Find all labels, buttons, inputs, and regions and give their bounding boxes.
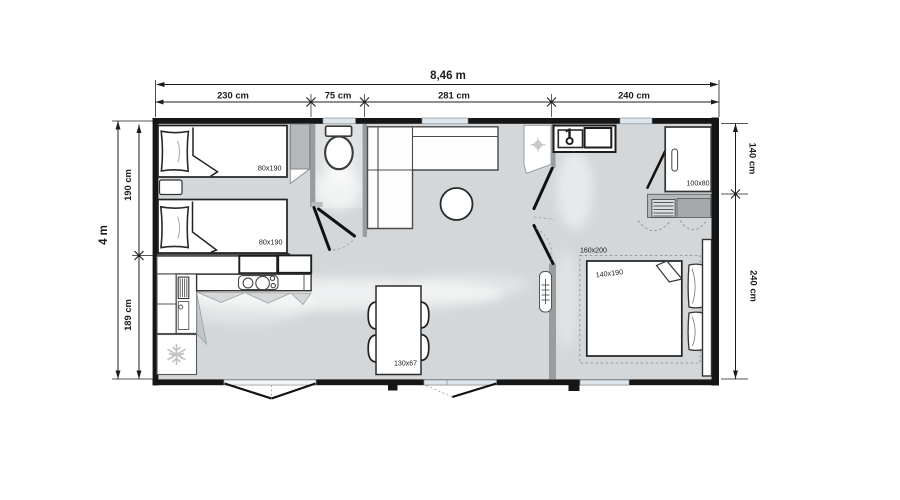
svg-text:160x200: 160x200 (580, 248, 607, 255)
svg-text:100x80: 100x80 (687, 181, 710, 188)
svg-text:130x67: 130x67 (394, 361, 417, 368)
svg-text:240 cm: 240 cm (618, 90, 650, 101)
svg-text:230 cm: 230 cm (217, 90, 249, 101)
svg-text:80x190: 80x190 (259, 237, 283, 246)
svg-text:8,46 m: 8,46 m (430, 70, 466, 82)
svg-text:240 cm: 240 cm (749, 270, 760, 302)
svg-text:75 cm: 75 cm (325, 90, 352, 101)
svg-text:189 cm: 189 cm (122, 299, 133, 331)
svg-text:4 m: 4 m (98, 225, 110, 245)
svg-text:281 cm: 281 cm (438, 90, 470, 101)
svg-text:80x190: 80x190 (258, 164, 282, 173)
svg-text:140 cm: 140 cm (748, 143, 759, 175)
svg-text:190 cm: 190 cm (122, 169, 133, 201)
